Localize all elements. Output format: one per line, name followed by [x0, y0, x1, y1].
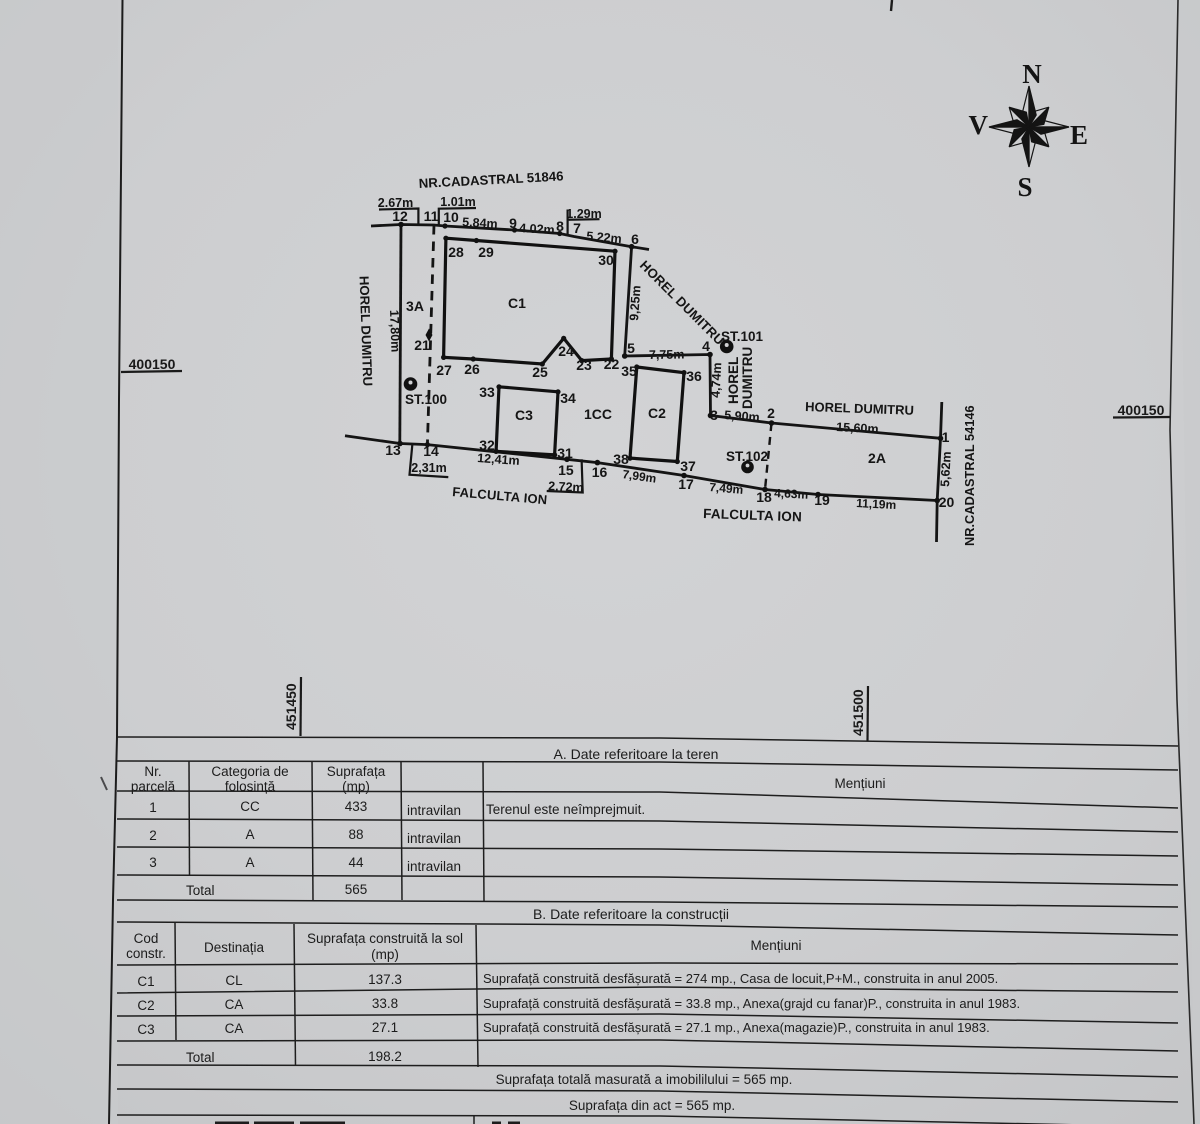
svg-text:ST.102: ST.102: [726, 449, 768, 464]
svg-text:38: 38: [613, 451, 629, 467]
svg-text:22: 22: [604, 356, 620, 372]
svg-text:565: 565: [345, 882, 368, 897]
svg-text:7,49m: 7,49m: [709, 480, 744, 497]
svg-text:Total: Total: [186, 883, 215, 898]
svg-text:parcelă: parcelă: [131, 779, 176, 794]
svg-text:A: A: [245, 855, 254, 870]
svg-text:4,63m: 4,63m: [774, 486, 809, 502]
svg-text:27: 27: [436, 362, 452, 378]
svg-text:C1: C1: [508, 295, 526, 311]
svg-text:Suprafață construită desfășura: Suprafață construită desfășurată = 27.1 …: [483, 1020, 990, 1035]
svg-text:4.02m: 4.02m: [519, 221, 555, 237]
svg-text:N: N: [1022, 59, 1042, 89]
svg-text:Total: Total: [186, 1050, 215, 1065]
svg-text:31: 31: [557, 445, 573, 461]
svg-text:NR.CADASTRAL 54146: NR.CADASTRAL 54146: [962, 405, 977, 546]
svg-text:15,60m: 15,60m: [836, 420, 879, 436]
svg-text:ST.100: ST.100: [405, 392, 447, 407]
svg-text:433: 433: [345, 799, 368, 814]
svg-text:3: 3: [710, 407, 718, 423]
svg-text:3: 3: [149, 855, 157, 870]
svg-text:11,19m: 11,19m: [856, 496, 897, 512]
svg-text:intravilan: intravilan: [407, 831, 461, 846]
svg-text:4: 4: [702, 338, 710, 354]
svg-text:2A: 2A: [868, 450, 886, 466]
svg-text:32: 32: [479, 437, 495, 453]
svg-text:1: 1: [942, 429, 950, 445]
svg-text:E: E: [1070, 120, 1088, 150]
svg-text:5: 5: [627, 340, 635, 356]
svg-text:5,90m: 5,90m: [724, 408, 760, 424]
svg-text:intravilan: intravilan: [407, 803, 461, 818]
svg-text:16: 16: [592, 464, 608, 480]
svg-text:Suprafață construită desfășura: Suprafață construită desfășurată = 274 m…: [483, 971, 998, 986]
svg-text:3A: 3A: [406, 298, 424, 314]
svg-text:33.8: 33.8: [372, 996, 398, 1011]
svg-text:7,75m: 7,75m: [649, 347, 685, 362]
svg-text:24: 24: [558, 343, 574, 359]
svg-text:Suprafața: Suprafața: [327, 764, 386, 779]
svg-text:18: 18: [756, 489, 772, 505]
svg-text:DUMITRU: DUMITRU: [740, 347, 755, 409]
svg-text:Terenul este neîmprejmuit.: Terenul este neîmprejmuit.: [486, 802, 645, 817]
svg-text:26: 26: [464, 361, 480, 377]
svg-text:19: 19: [814, 492, 830, 508]
svg-text:33: 33: [479, 384, 495, 400]
svg-text:Categoria de: Categoria de: [211, 764, 288, 779]
svg-text:B. Date referitoare la constru: B. Date referitoare la construcții: [533, 906, 729, 922]
svg-text:17: 17: [678, 476, 694, 492]
svg-text:1CC: 1CC: [584, 406, 612, 422]
svg-text:5.84m: 5.84m: [462, 215, 498, 231]
svg-text:10: 10: [443, 209, 459, 225]
svg-text:C1: C1: [137, 974, 154, 989]
svg-text:Cod: Cod: [134, 931, 159, 946]
svg-text:intravilan: intravilan: [407, 859, 461, 874]
svg-text:A: A: [245, 827, 254, 842]
svg-text:Nr.: Nr.: [144, 764, 161, 779]
svg-text:15: 15: [558, 462, 574, 478]
svg-text:35: 35: [621, 363, 637, 379]
svg-text:C2: C2: [137, 998, 154, 1013]
svg-text:CA: CA: [225, 1021, 244, 1036]
svg-text:11: 11: [424, 208, 439, 224]
svg-text:400150: 400150: [129, 356, 176, 372]
svg-text:28: 28: [448, 244, 464, 260]
svg-text:2: 2: [149, 828, 157, 843]
svg-text:7: 7: [573, 220, 581, 236]
svg-text:451500: 451500: [850, 689, 866, 736]
svg-text:137.3: 137.3: [368, 972, 402, 987]
svg-text:A. Date referitoare la teren: A. Date referitoare la teren: [554, 746, 719, 762]
svg-text:400150: 400150: [1118, 402, 1165, 418]
svg-text:1.01m: 1.01m: [440, 195, 475, 209]
svg-text:34: 34: [560, 390, 576, 406]
svg-text:CC: CC: [240, 799, 260, 814]
svg-text:2,31m: 2,31m: [411, 461, 446, 475]
svg-text:8: 8: [556, 218, 564, 234]
svg-text:14: 14: [423, 443, 439, 459]
svg-text:2: 2: [767, 405, 775, 421]
svg-text:13: 13: [385, 442, 401, 458]
svg-text:folosință: folosință: [225, 779, 276, 794]
svg-text:V: V: [969, 110, 989, 140]
svg-text:S: S: [1017, 172, 1032, 202]
svg-text:9: 9: [509, 215, 517, 231]
svg-text:23: 23: [576, 357, 592, 373]
svg-text:12: 12: [392, 208, 408, 224]
svg-text:44: 44: [348, 855, 364, 870]
svg-text:constr.: constr.: [126, 946, 166, 961]
svg-text:Suprafața din act = 565 mp.: Suprafața din act = 565 mp.: [569, 1098, 735, 1113]
svg-text:30: 30: [598, 252, 614, 268]
svg-text:27.1: 27.1: [372, 1020, 398, 1035]
svg-text:17,80m: 17,80m: [387, 310, 402, 353]
svg-text:Suprafață construită desfășura: Suprafață construită desfășurată = 33.8 …: [483, 996, 1020, 1011]
svg-text:CA: CA: [225, 997, 244, 1012]
svg-text:(mp): (mp): [342, 779, 370, 794]
svg-text:9,25m: 9,25m: [627, 285, 643, 321]
svg-text:88: 88: [348, 827, 363, 842]
svg-text:25: 25: [532, 364, 548, 380]
svg-text:CL: CL: [225, 973, 243, 988]
svg-text:HOREL: HOREL: [726, 357, 741, 404]
svg-text:6: 6: [631, 231, 639, 247]
svg-text:C2: C2: [648, 405, 666, 421]
svg-text:198.2: 198.2: [368, 1049, 402, 1064]
svg-text:1: 1: [149, 800, 157, 815]
svg-text:29: 29: [478, 244, 494, 260]
svg-text:Mențiuni: Mențiuni: [750, 938, 801, 953]
svg-text:(mp): (mp): [371, 947, 399, 962]
svg-text:451450: 451450: [283, 683, 299, 730]
svg-text:C3: C3: [515, 407, 533, 423]
svg-text:4,74m: 4,74m: [709, 362, 725, 398]
svg-text:Mențiuni: Mențiuni: [834, 776, 885, 791]
svg-text:5,62m: 5,62m: [938, 451, 954, 487]
svg-text:20: 20: [939, 494, 955, 510]
svg-text:36: 36: [686, 368, 702, 384]
svg-text:Destinația: Destinația: [204, 940, 265, 955]
svg-text:Suprafața totală masurată a im: Suprafața totală masurată a imobililului…: [496, 1072, 793, 1087]
svg-text:Suprafața construită la sol: Suprafața construită la sol: [307, 931, 463, 946]
svg-text:C3: C3: [137, 1022, 154, 1037]
svg-text:21: 21: [414, 337, 430, 353]
svg-text:37: 37: [680, 458, 696, 474]
